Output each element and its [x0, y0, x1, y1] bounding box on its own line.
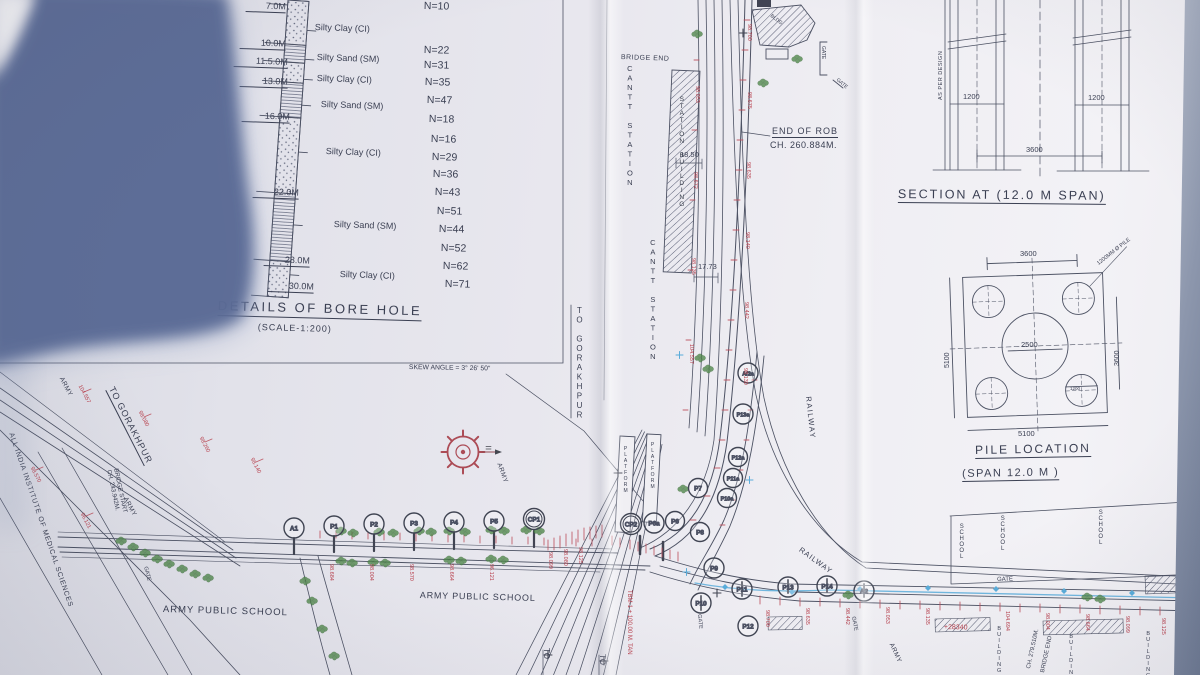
n-value: N=71 [445, 279, 471, 291]
building-label-1: BUILDING [996, 626, 1002, 674]
depth-label: 16.0M [242, 110, 290, 124]
n-value: N=29 [432, 152, 458, 164]
spot-level: 98.135 [690, 258, 696, 275]
pier-label: P11 [736, 587, 747, 594]
pile-dim-right: 3600 [1114, 350, 1122, 366]
spot-level: 98.125 [1160, 618, 1166, 635]
cantt-station-2: CANTT STATION [648, 238, 656, 362]
pier-label: P5 [490, 519, 498, 526]
borehole-scale: (SCALE-1:200) [258, 322, 332, 334]
n-value: N=44 [439, 224, 465, 236]
top-building-shape [752, 0, 843, 88]
span-dim-1850: 18.50 [680, 151, 699, 159]
depth-label: 11.5.0M [234, 55, 288, 69]
depth-label: 30.0M [268, 280, 314, 294]
spot-level: 98.053 [884, 607, 890, 624]
soil-label: Silty Sand (SM) [334, 219, 397, 231]
depth-label: 22.0M [253, 186, 299, 200]
school-label-3: SCHOOL [1097, 510, 1104, 546]
soil-label: Silty Clay (CI) [315, 22, 370, 34]
spot-level: 98.125 [577, 547, 583, 564]
spot-level: 104.557 [688, 344, 694, 364]
school-label-2: SCHOOL [999, 516, 1006, 552]
spot-level: 98.570 [408, 564, 414, 581]
pier-label: CP1 [528, 517, 541, 524]
n-value: N=62 [443, 261, 469, 273]
cantt-station-1: CANTT STATION [625, 64, 633, 188]
depth-label: 7.0M [246, 0, 286, 13]
spot-level: 98.442 [743, 302, 749, 319]
soil-label: Silty Clay (CI) [317, 73, 372, 85]
pier-label: P12a [732, 456, 746, 462]
platform-label-1: PLATFORM [622, 446, 628, 494]
spot-level: 98.635 [804, 608, 810, 625]
pile-dim-center: 2500 [1021, 341, 1038, 349]
gate-label-junction: GATE [696, 614, 703, 629]
spot-level: 98.004 [1044, 613, 1050, 630]
span-dim-1773: 17.73 [698, 263, 717, 271]
depth-label: 13.0M [240, 75, 288, 89]
pier-label: P13a [737, 413, 751, 419]
soil-label: Silty Clay (CI) [326, 146, 381, 158]
spot-level: 98.053 [694, 86, 700, 103]
pier-label: A1 [290, 526, 299, 533]
platform-label-2: PLATFORM [649, 442, 655, 490]
bridge-end-top: BRIDGE END [621, 54, 670, 64]
spot-level: 98.672 [692, 172, 698, 189]
pier-label: P13 [782, 585, 794, 592]
section-note: AS PER DESIGN [938, 51, 944, 100]
soil-label: Silty Sand (SM) [321, 99, 384, 111]
pier-label: P1 [330, 524, 338, 531]
section-dim-right: 1200 [1088, 94, 1105, 102]
spot-level: 98.684 [328, 564, 334, 581]
n-value: N=31 [424, 60, 450, 72]
end-of-rob-2: CH. 260.884M. [770, 140, 837, 150]
to-label-2: TO [597, 654, 606, 665]
n-value: N=47 [427, 95, 453, 107]
soil-label: Silty Clay (CI) [340, 269, 395, 281]
to-gorakhpur-vertical: TO GORAKHPUR [574, 306, 583, 420]
n-value: N=10 [424, 1, 450, 13]
east-road [650, 556, 1196, 611]
n-value: N=16 [431, 134, 457, 146]
spot-level: 98.664 [1084, 614, 1090, 631]
skew-note: SKEW ANGLE = 3° 26' 50" [409, 364, 491, 373]
gate-label-top-1: GATE [819, 46, 825, 59]
depth-label: 28.0M [264, 254, 310, 268]
spot-level: 98.675 [746, 92, 752, 109]
spot-level: 98.140 [744, 232, 750, 249]
compass-rose-icon [442, 431, 503, 474]
n-value: N=36 [433, 169, 459, 181]
blueprint-photo: A1 P1 P2 P3 P4 P5 CP1 CP2 P6a P6 P7 P8 P… [0, 0, 1200, 675]
pier-label: P12 [742, 624, 754, 631]
spot-level: 98.135 [924, 608, 930, 625]
soil-label: Silty Sand (SM) [317, 52, 380, 64]
building-label-2: BUILDING [1068, 634, 1074, 675]
section-dim-spacing: 3600 [1026, 146, 1043, 154]
n-value: N=43 [435, 187, 461, 199]
n-value: N=22 [424, 45, 450, 57]
spot-level: 98.004 [368, 564, 374, 581]
pile-dim-left: 5100 [944, 352, 952, 368]
pier-label: P11a [727, 477, 740, 483]
spot-level: 98.130 [742, 368, 748, 385]
spot-level: 98.099 [1124, 616, 1130, 633]
spot-level: 98.442 [844, 608, 850, 625]
n-value: N=52 [441, 243, 467, 255]
pier-label: P9 [710, 566, 718, 573]
pile-dim-dia: 1200 [1070, 386, 1080, 391]
spot-level: 98.664 [448, 564, 454, 581]
section-dim-left: 1200 [963, 93, 980, 101]
section-title: SECTION AT (12.0 M SPAN) [898, 187, 1106, 205]
pier-label: P7 [694, 486, 702, 493]
pile-dim-top: 3600 [1020, 250, 1037, 258]
pier-label: P10a [721, 497, 735, 503]
pier-label: A2 [860, 589, 869, 596]
end-of-rob-1: END OF ROB [772, 126, 838, 138]
pile-title: PILE LOCATION [975, 442, 1091, 459]
pier-label: P8 [696, 530, 704, 537]
pier-label: P3 [410, 521, 418, 528]
pier-label: P6a [648, 521, 660, 528]
offset-note: +28340 [944, 624, 968, 632]
spot-level: 98.099 [547, 552, 553, 569]
n-value: N=35 [425, 77, 451, 89]
survey-ticks [36, 20, 1178, 616]
spot-level: 98.635 [745, 162, 751, 179]
spot-level: 98.080 [562, 549, 568, 566]
depth-label: 10.0M [240, 37, 286, 51]
school-label-1: SCHOOL [958, 524, 965, 560]
spot-level: 96.121 [488, 564, 494, 581]
pier-label: P6 [671, 519, 679, 526]
pier-label: CP2 [625, 522, 638, 529]
building-label-3: BUILDING [1145, 631, 1151, 675]
to-label-1: TO [541, 648, 550, 659]
pier-label: P2 [370, 522, 378, 529]
tree-icons [116, 30, 1106, 660]
pile-subtitle: (SPAN 12.0 M ) [962, 466, 1059, 482]
pier-label: P10 [695, 601, 707, 608]
spot-level: 98.700 [764, 610, 770, 627]
spot-level: 98.700 [746, 24, 752, 41]
gate-label-school: GATE [997, 576, 1013, 583]
pier-label: P4 [450, 520, 458, 527]
n-value: N=18 [429, 114, 455, 126]
tbm-note: TBM-1 + 100.00 M. TAN [625, 590, 632, 655]
spot-level: 104.694 [1004, 611, 1010, 631]
drawing-linework: A1 P1 P2 P3 P4 P5 CP1 CP2 P6a P6 P7 P8 P… [0, 0, 1200, 675]
corridor-boundary [604, 0, 607, 400]
pile-dim-bottom: 5100 [1018, 430, 1035, 438]
n-value: N=51 [437, 206, 463, 218]
pier-label: P14 [821, 584, 833, 591]
pile-location-drawing [947, 247, 1133, 437]
